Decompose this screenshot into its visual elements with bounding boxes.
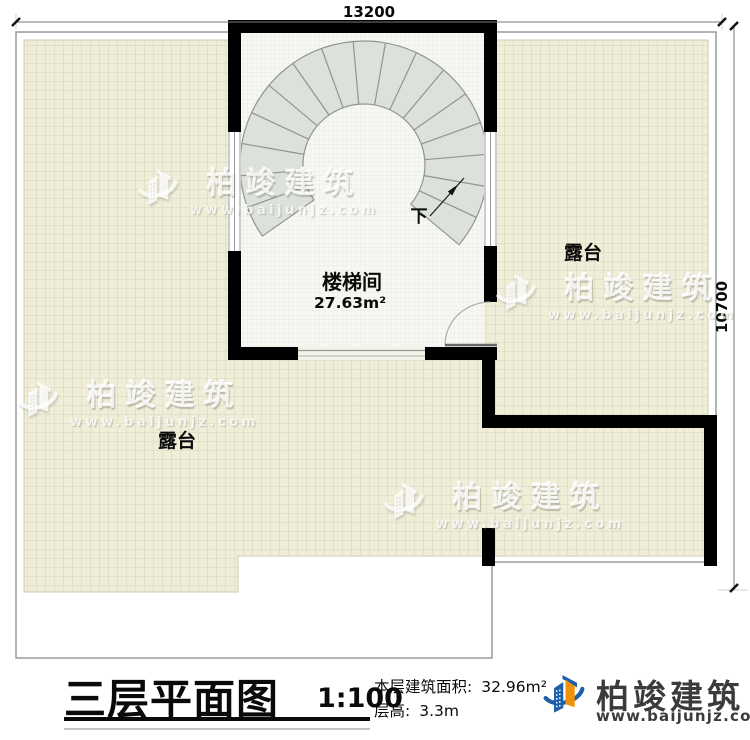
floor-height-value: 3.3m [419,699,459,723]
terrace-bottom-label: 露台 [158,429,196,452]
drawing-info: 本层建筑面积: 32.96m² 层高: 3.3m [374,675,547,723]
floor-height-label: 层高: [374,699,410,723]
title-block: 三层平面图 1:100 本层建筑面积: 32.96m² 层高: 3.3m 柏竣建… [0,662,750,740]
floor-plan: 13200 10700 楼梯间 27.63m² 露台 露台 下 [0,0,750,662]
dimension-right: 10700 [713,22,748,592]
window-right [484,132,497,246]
floor-plan-drawing: 13200 10700 楼梯间 27.63m² 露台 露台 下 [0,0,750,662]
window-bottom [298,347,425,360]
title-underline-thin [64,728,370,730]
stairwell-label: 楼梯间 [322,270,382,294]
window-left [228,132,241,251]
dimension-top-value: 13200 [343,3,395,21]
floor-area-value: 32.96m² [481,675,547,699]
terrace-right-label: 露台 [564,241,602,264]
company-logo-icon [541,669,587,721]
company-logo-website: www.baijunjz.com [596,707,750,725]
dimension-right-value: 10700 [713,281,731,333]
title-underline-thick [64,717,370,721]
stairs-down-label: 下 [411,207,428,227]
stairwell-area: 27.63m² [314,294,386,312]
floor-area-label: 本层建筑面积: [374,675,472,699]
